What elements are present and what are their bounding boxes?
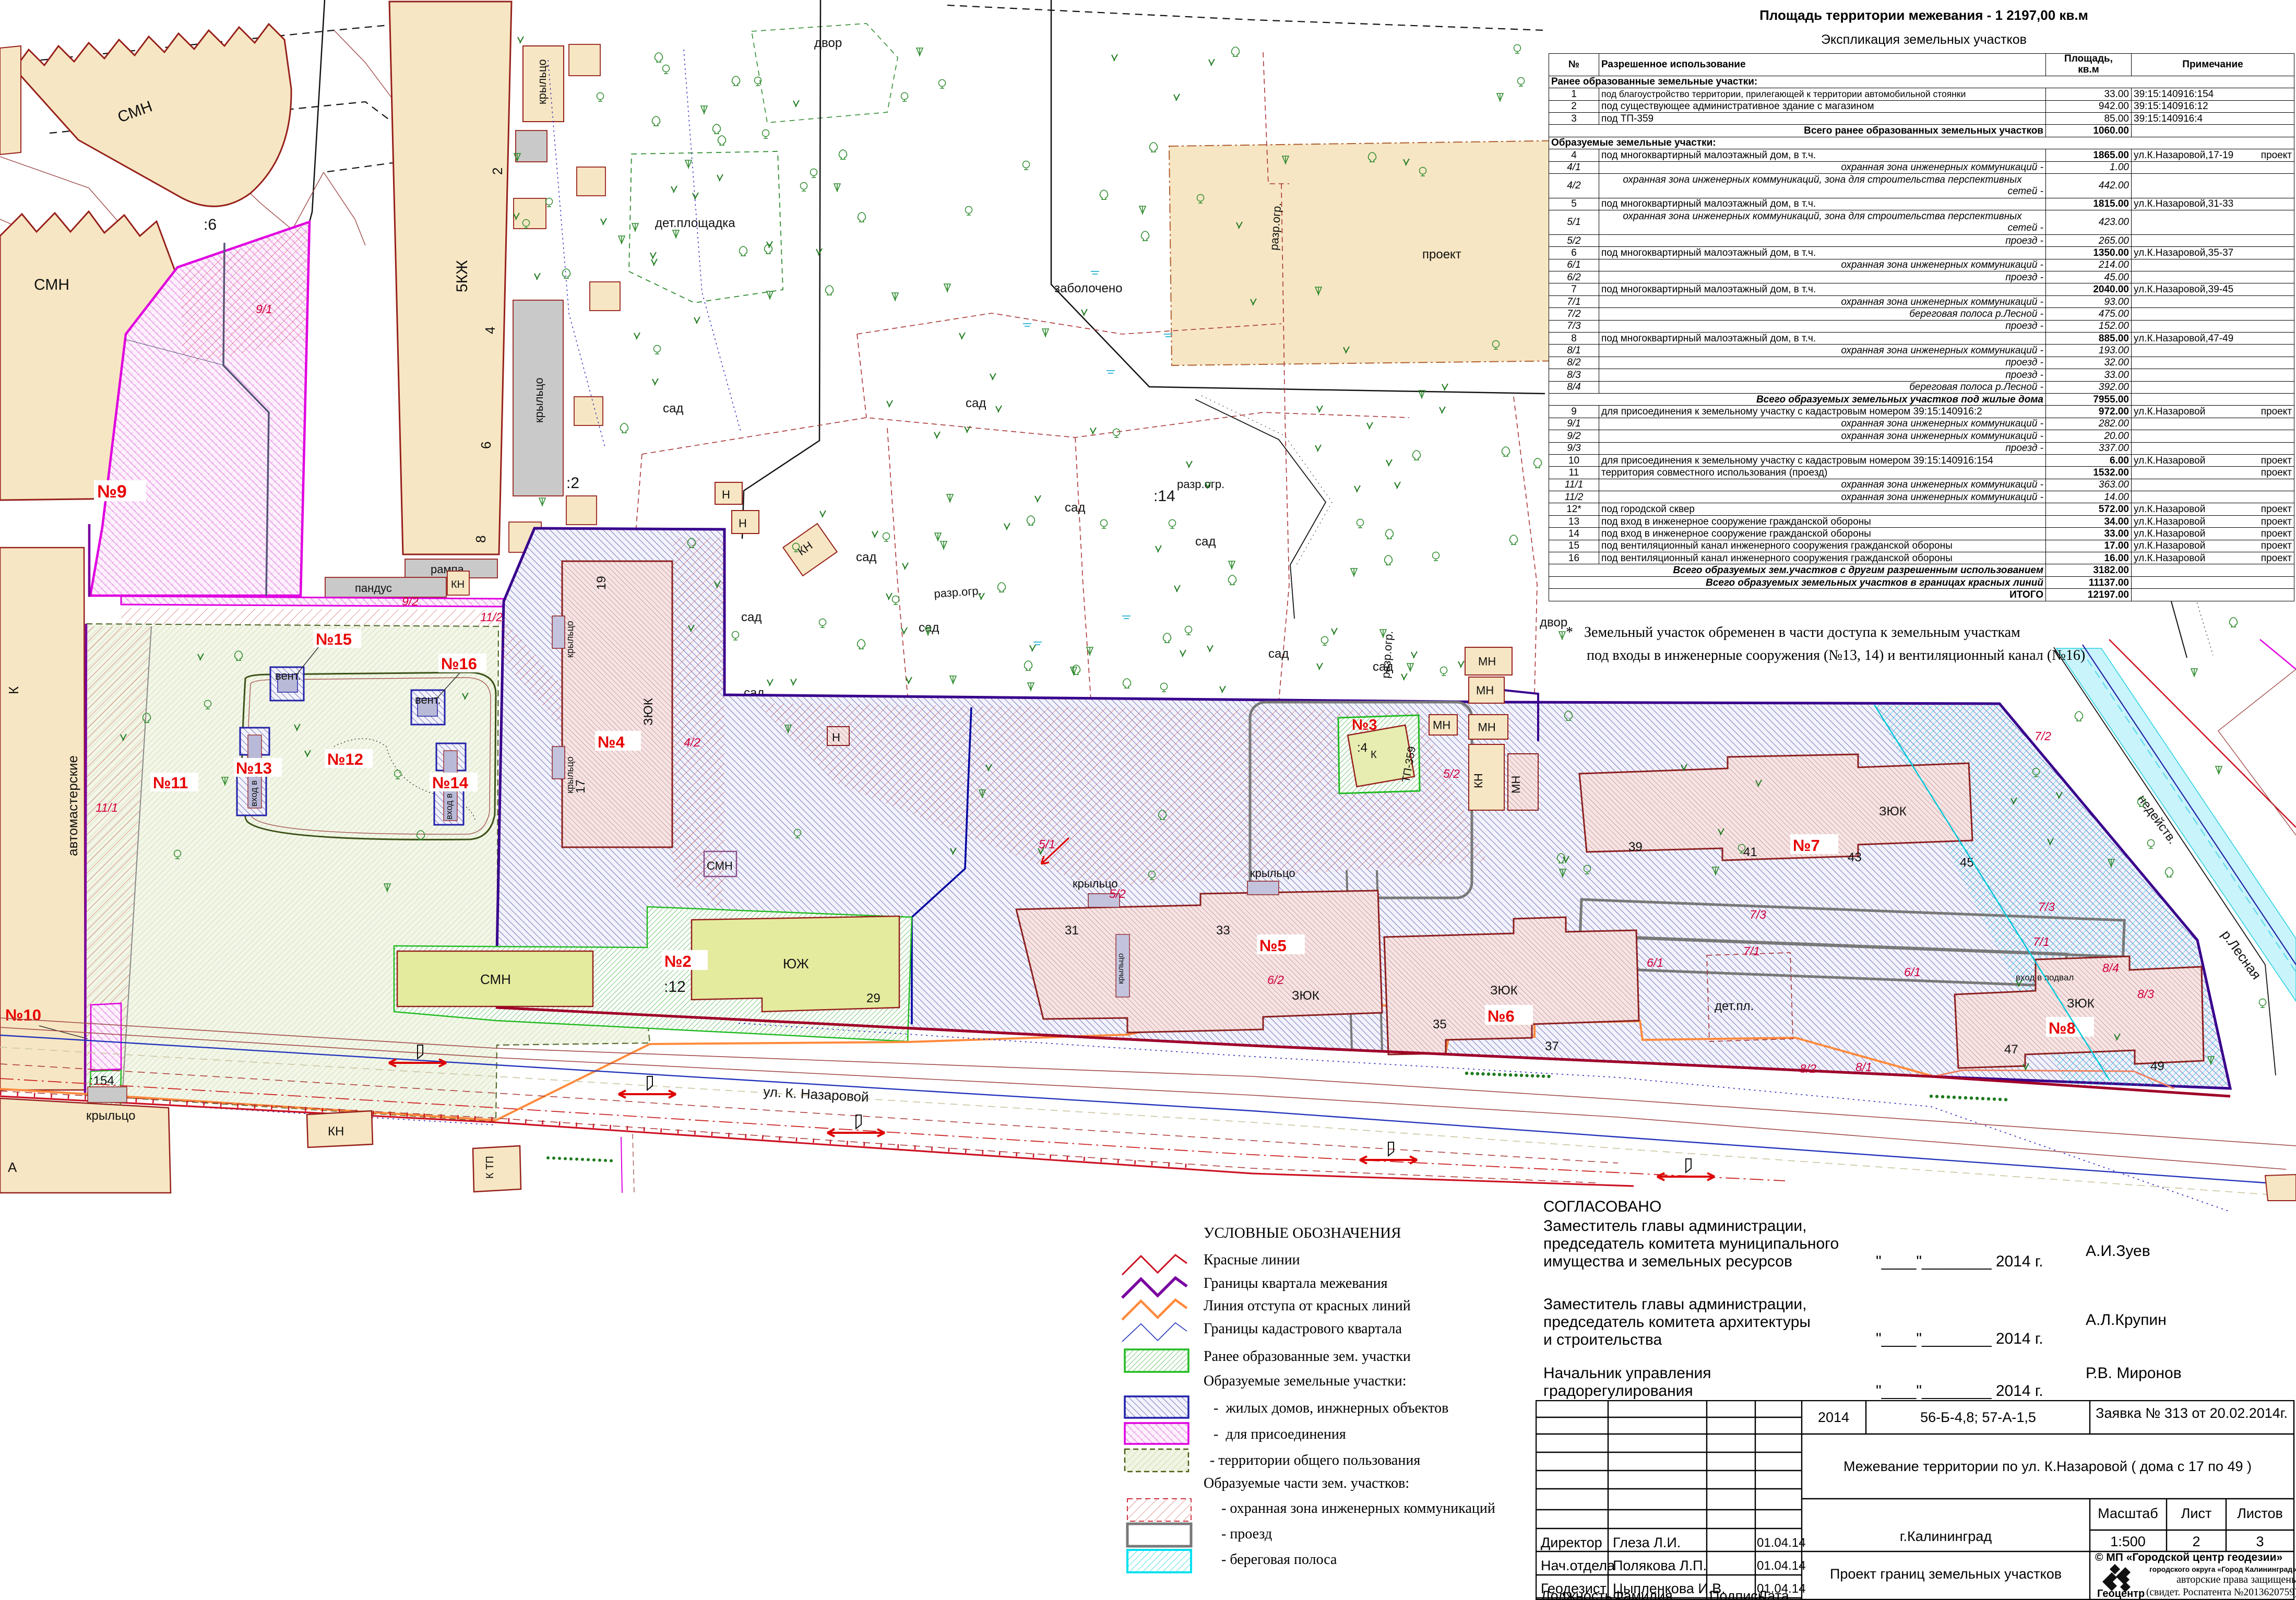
svg-text:крыльцо: крыльцо [565, 621, 575, 658]
svg-text:МН: МН [1433, 719, 1450, 732]
svg-text:К: К [6, 686, 21, 694]
svg-text:сад: сад [966, 396, 986, 410]
svg-text:17: 17 [574, 779, 588, 793]
svg-text:5/1: 5/1 [1039, 837, 1055, 851]
svg-text:№16: №16 [441, 655, 477, 673]
svg-text:29: 29 [866, 991, 881, 1005]
svg-text:разр.огр.: разр.огр. [1177, 478, 1224, 491]
svg-text:ЗЮК: ЗЮК [1292, 989, 1319, 1003]
svg-text:№2: №2 [664, 952, 692, 970]
svg-text:№11: №11 [153, 774, 188, 792]
svg-text:2: 2 [490, 168, 505, 175]
svg-text:№7: №7 [1793, 836, 1820, 855]
svg-text:№6: №6 [1488, 1007, 1515, 1025]
svg-text:сад: сад [1268, 647, 1289, 661]
svg-text:№5: №5 [1259, 937, 1287, 955]
svg-text:8: 8 [473, 536, 489, 543]
svg-text:вент.: вент. [415, 693, 441, 706]
svg-text:ЗЮК: ЗЮК [1490, 983, 1518, 998]
svg-text:крыльцо: крыльцо [86, 1109, 135, 1123]
svg-text:6/1: 6/1 [1904, 965, 1921, 979]
svg-text:сад: сад [1373, 660, 1393, 674]
svg-text:А: А [8, 1159, 17, 1175]
svg-text:ЗЮК: ЗЮК [641, 698, 656, 726]
svg-text:сад: сад [741, 610, 762, 624]
svg-text:разр.огр.: разр.огр. [934, 584, 982, 600]
svg-text:ЗЮК: ЗЮК [2067, 997, 2095, 1011]
svg-text:9/1: 9/1 [256, 302, 272, 316]
svg-text::4: :4 [1357, 741, 1367, 755]
svg-text:8/4: 8/4 [2102, 961, 2119, 975]
svg-text:крыльцо: крыльцо [1250, 867, 1295, 880]
svg-text:35: 35 [1433, 1017, 1447, 1032]
svg-text:МН: МН [1478, 655, 1496, 668]
svg-text:8/2: 8/2 [1800, 1062, 1816, 1075]
svg-text:№14: №14 [432, 774, 469, 792]
svg-text:7/2: 7/2 [2035, 729, 2051, 743]
svg-text:4: 4 [482, 327, 498, 334]
svg-text:31: 31 [1065, 923, 1079, 938]
svg-text:47: 47 [2004, 1042, 2018, 1057]
svg-text:6/1: 6/1 [1647, 956, 1663, 969]
svg-text:КН: КН [1472, 773, 1485, 788]
svg-text:Н: Н [722, 488, 730, 501]
svg-text:19: 19 [594, 576, 609, 590]
svg-text:№15: №15 [316, 630, 352, 648]
svg-text:СМН: СМН [34, 276, 69, 293]
svg-text:№10: №10 [5, 1006, 41, 1024]
svg-text:45: 45 [1960, 856, 1974, 870]
svg-text:сад: сад [1195, 535, 1216, 549]
svg-text:№9: №9 [97, 482, 127, 502]
svg-text:проект: проект [1422, 247, 1461, 262]
svg-text:дет.площадка: дет.площадка [655, 216, 735, 230]
svg-text:9/2: 9/2 [402, 595, 419, 608]
svg-text:КН: КН [328, 1124, 344, 1139]
svg-text:МН: МН [1478, 721, 1496, 734]
svg-text:№4: №4 [598, 733, 625, 751]
svg-text:№8: №8 [2049, 1019, 2076, 1037]
svg-text:сад: сад [856, 550, 876, 564]
svg-text:СМН: СМН [480, 971, 511, 987]
svg-text:7/1: 7/1 [1743, 944, 1760, 958]
svg-text::2: :2 [566, 475, 579, 492]
svg-text:вент.: вент. [275, 669, 301, 682]
svg-text:заболочено: заболочено [1054, 281, 1122, 295]
svg-text:№13: №13 [236, 759, 272, 777]
svg-text:Н: Н [832, 731, 840, 744]
svg-text::14: :14 [1153, 488, 1175, 505]
svg-text:двор: двор [1540, 615, 1567, 630]
svg-text:Н: Н [739, 517, 747, 530]
svg-text:№12: №12 [327, 750, 363, 768]
svg-text:5КЖ: 5КЖ [454, 260, 471, 292]
svg-text:сад: сад [1065, 501, 1085, 515]
svg-text:К: К [1371, 749, 1377, 761]
svg-text:5/2: 5/2 [1109, 887, 1126, 900]
svg-text::12: :12 [664, 978, 686, 995]
svg-text:ЮЖ: ЮЖ [783, 956, 809, 971]
svg-text:автомастерские: автомастерские [65, 755, 80, 856]
svg-text:49: 49 [2150, 1059, 2164, 1073]
svg-text:КН: КН [451, 579, 465, 590]
svg-text:крыльцо: крыльцо [536, 59, 549, 104]
svg-text:43: 43 [1848, 850, 1862, 864]
svg-text:7/3: 7/3 [2038, 900, 2055, 914]
svg-text:СМН: СМН [707, 859, 733, 872]
svg-text:7/3: 7/3 [1750, 908, 1766, 921]
svg-text:ЗЮК: ЗЮК [1879, 804, 1907, 819]
svg-text::6: :6 [204, 216, 217, 233]
svg-text:37: 37 [1545, 1039, 1559, 1053]
svg-text:крыльцо: крыльцо [1116, 953, 1125, 984]
svg-text:№3: №3 [1352, 717, 1377, 733]
svg-text:11/2: 11/2 [480, 610, 503, 624]
svg-text::154: :154 [90, 1074, 114, 1088]
svg-text:8/3: 8/3 [2137, 987, 2154, 1001]
svg-text:сад: сад [663, 401, 683, 416]
svg-text:6/2: 6/2 [1267, 973, 1284, 987]
svg-text:МН: МН [1509, 776, 1522, 793]
svg-text:7/1: 7/1 [2033, 935, 2050, 949]
svg-text:пандус: пандус [355, 582, 392, 595]
svg-text:4/2: 4/2 [684, 736, 700, 749]
svg-text:33: 33 [1216, 923, 1230, 938]
svg-text:39: 39 [1628, 840, 1643, 854]
svg-text:МН: МН [1476, 684, 1494, 697]
svg-text:5/2: 5/2 [1443, 767, 1460, 780]
svg-text:двор: двор [814, 36, 842, 50]
svg-text:11/1: 11/1 [96, 801, 118, 814]
svg-text:дет.пл.: дет.пл. [1715, 999, 1754, 1013]
svg-text:6: 6 [478, 442, 494, 449]
svg-text:К ТП: К ТП [484, 1156, 496, 1179]
svg-text:крыльцо: крыльцо [532, 377, 545, 423]
